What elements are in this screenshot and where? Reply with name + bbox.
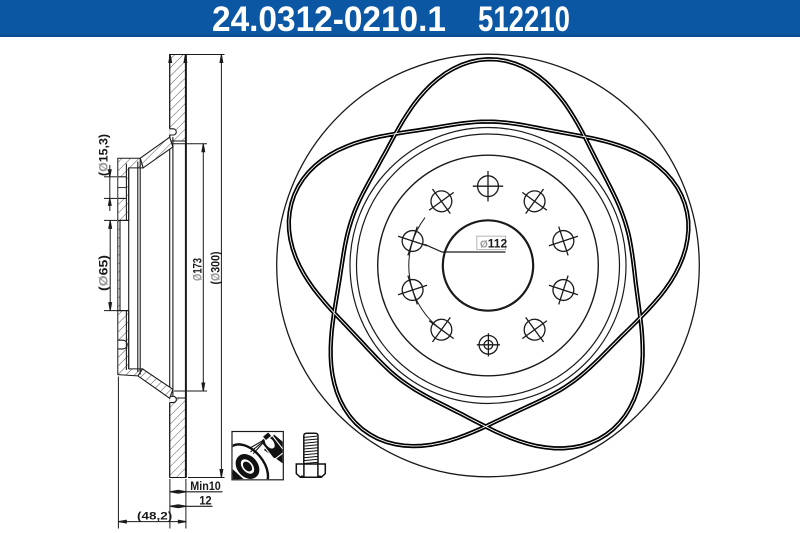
svg-text:512210: 512210 [478,0,570,39]
svg-text:(Ø15,3): (Ø15,3) [96,134,110,176]
svg-text:12: 12 [199,493,212,507]
svg-text:Ø173: Ø173 [191,258,205,281]
svg-text:Min10: Min10 [190,479,221,493]
svg-text:Ø112: Ø112 [480,236,507,250]
svg-text:(Ø300): (Ø300) [209,252,223,285]
svg-text:(48,2): (48,2) [137,511,173,523]
svg-text:(Ø65): (Ø65) [96,255,110,291]
svg-text:24.0312-0210.1: 24.0312-0210.1 [212,0,446,39]
